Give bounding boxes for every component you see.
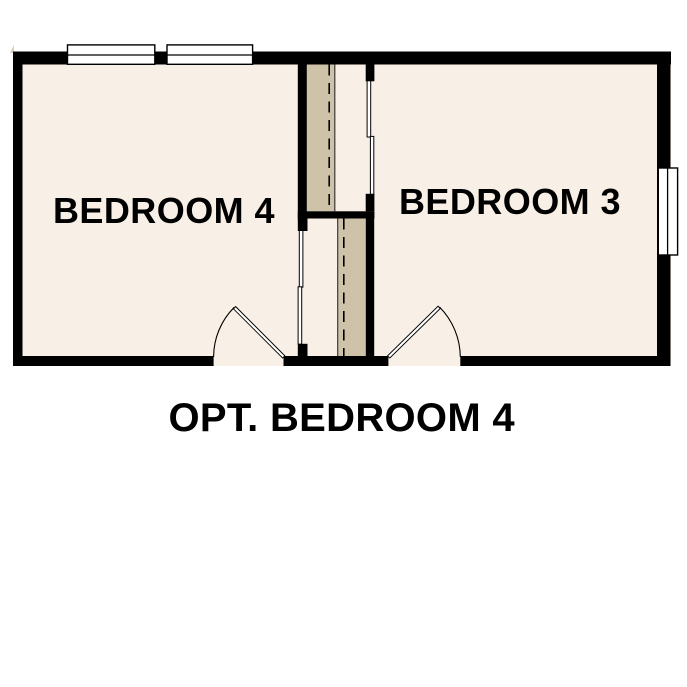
svg-text:BEDROOM 3: BEDROOM 3 [399,181,621,222]
svg-text:OPT. BEDROOM 4: OPT. BEDROOM 4 [168,396,515,440]
svg-text:BEDROOM 4: BEDROOM 4 [53,190,275,231]
